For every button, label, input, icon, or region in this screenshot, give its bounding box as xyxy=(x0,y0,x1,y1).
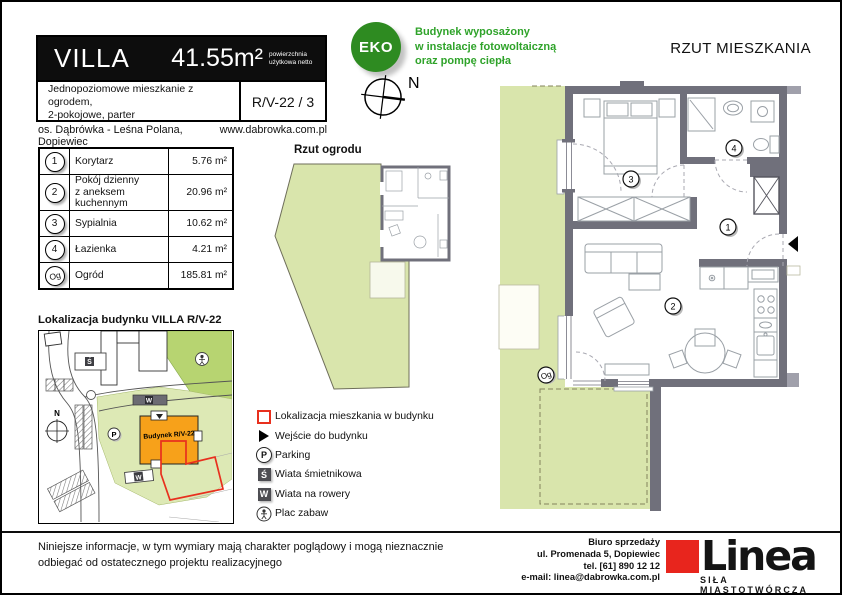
garden-fence-wall xyxy=(650,385,661,511)
unit-description-line1: Jednopoziomowe mieszkanie z ogrodem, xyxy=(48,83,239,109)
shaft xyxy=(754,177,779,214)
legend-label: Wiata na rowery xyxy=(275,489,350,500)
garden-plan-drawing xyxy=(272,154,482,394)
room-name: Ogród xyxy=(75,270,168,282)
flyer-page: VILLA 41.55m² powierzchnia użytkowa nett… xyxy=(0,0,842,595)
map-bike-badge: W xyxy=(146,398,153,405)
map-legend: Lokalizacja mieszkania w budynku Wejście… xyxy=(253,407,443,523)
estate-name: os. Dąbrówka - Leśna Polana, Dopiewiec xyxy=(38,124,220,148)
room-number-badge: 4 xyxy=(45,240,65,260)
table-row: 3 Sypialnia 10.62 m² xyxy=(40,211,232,237)
table-row: 1 Korytarz 5.76 m² xyxy=(40,149,232,175)
entrance-arrow-icon xyxy=(259,430,269,442)
location-map-title: Lokalizacja budynku VILLA R/V-22 xyxy=(38,314,222,326)
apartment-plan-title: RZUT MIESZKANIA xyxy=(666,40,811,57)
header-card: VILLA 41.55m² powierzchnia użytkowa nett… xyxy=(36,35,327,122)
map-parking-badge: P xyxy=(111,430,116,439)
unit-code: R/V-22 / 3 xyxy=(241,82,325,122)
unit-description-line2: 2-pokojowe, parter xyxy=(48,109,239,122)
map-playground-icon xyxy=(196,353,209,366)
room-name: Korytarz xyxy=(75,156,168,168)
header-subline: os. Dąbrówka - Leśna Polana, Dopiewiec w… xyxy=(38,124,327,148)
bike-shelter-icon: W xyxy=(258,488,271,501)
table-row: 4 Łazienka 4.21 m² xyxy=(40,237,232,263)
logo-wordmark: Linea xyxy=(701,540,816,573)
table-row: 2 Pokój dzienny z aneksem kuchennym 20.9… xyxy=(40,175,232,211)
office-phone[interactable]: tel. [61] 890 12 12 xyxy=(472,561,660,573)
compass-icon: N xyxy=(356,72,422,124)
room-area: 20.96 m² xyxy=(169,175,232,210)
room-area: 185.81 m² xyxy=(169,263,232,288)
walls xyxy=(565,81,801,387)
unit-description: Jednopoziomowe mieszkanie z ogrodem, 2-p… xyxy=(38,82,241,122)
room-name: Sypialnia xyxy=(75,218,168,230)
room-number-badge: 3 xyxy=(45,214,65,234)
eco-text: Budynek wyposażony w instalacje fotowolt… xyxy=(415,25,556,69)
legend-item: Plac zabaw xyxy=(253,504,443,523)
office-email[interactable]: e-mail: linea@dabrowka.com.pl xyxy=(472,572,660,584)
eco-line3: oraz pompę ciepła xyxy=(415,54,556,69)
mini-window xyxy=(380,230,384,247)
parking-icon: P xyxy=(256,447,272,463)
room-number-badge: 2 xyxy=(45,183,65,203)
room-label-3: 3 xyxy=(628,175,633,185)
villa-title: VILLA xyxy=(54,43,130,74)
eco-badge: EKO xyxy=(351,22,401,72)
room-name: Łazienka xyxy=(75,244,168,256)
disclaimer-line2: odbiegać od ostatecznego projektu realiz… xyxy=(38,556,468,572)
legend-label: Parking xyxy=(275,450,310,461)
legend-item: P Parking xyxy=(253,446,443,465)
room-number-badge: 1 xyxy=(45,152,65,172)
legend-item: Lokalizacja mieszkania w budynku xyxy=(253,407,443,426)
header-info-row: Jednopoziomowe mieszkanie z ogrodem, 2-p… xyxy=(38,80,325,122)
room-name-line2: z aneksem kuchennym xyxy=(75,187,168,210)
map-trash-badge: Ś xyxy=(87,357,92,366)
legend-item: W Wiata na rowery xyxy=(253,485,443,504)
legend-label: Wiata śmietnikowa xyxy=(275,469,362,480)
room-name: Pokój dzienny xyxy=(75,175,168,187)
table-row: Og Ogród 185.81 m² xyxy=(40,263,232,288)
room-area: 5.76 m² xyxy=(169,149,232,174)
legend-label: Plac zabaw xyxy=(275,508,328,519)
apartment-plan-drawing: 3 4 1 2 Og xyxy=(494,70,814,515)
logo-red-square xyxy=(666,540,699,573)
linea-logo: Linea SIŁA MIASTOTWÓRCZA xyxy=(666,536,816,595)
office-title: Biuro sprzedaży xyxy=(472,537,660,549)
apartment-outline-icon xyxy=(257,410,271,424)
room-table: 1 Korytarz 5.76 m² 2 Pokój dzienny z ane… xyxy=(38,147,234,290)
area-note: powierzchnia użytkowa netto xyxy=(269,51,317,66)
room-label-2: 2 xyxy=(670,302,675,312)
room-label-4: 4 xyxy=(731,144,736,154)
mini-window xyxy=(380,182,384,195)
legend-label: Lokalizacja mieszkania w budynku xyxy=(275,411,434,422)
header-black-bar: VILLA 41.55m² powierzchnia użytkowa nett… xyxy=(38,37,325,80)
compass-north-label: N xyxy=(408,75,420,92)
furniture xyxy=(578,98,779,377)
office-address: ul. Promenada 5, Dopiewiec xyxy=(472,549,660,561)
entrance-arrow-icon xyxy=(788,236,798,252)
eco-line1: Budynek wyposażony xyxy=(415,25,556,40)
room-area: 10.62 m² xyxy=(169,211,232,236)
room-area: 4.21 m² xyxy=(169,237,232,262)
playground-icon xyxy=(256,506,272,522)
legend-label: Wejście do budynku xyxy=(275,431,368,442)
legend-item: Ś Wiata śmietnikowa xyxy=(253,465,443,484)
disclaimer-line1: Niniejsze informacje, w tym wymiary mają… xyxy=(38,540,468,556)
trash-shelter-icon: Ś xyxy=(258,468,271,481)
area-value: 41.55m² xyxy=(171,44,263,73)
eco-line2: w instalacje fotowoltaiczną xyxy=(415,40,556,55)
legend-item: Wejście do budynku xyxy=(253,426,443,445)
room-label-1: 1 xyxy=(725,223,730,233)
disclaimer: Niniejsze informacje, w tym wymiary mają… xyxy=(38,540,468,571)
location-map: Ś W W Budynek R/V-22 P xyxy=(38,330,234,524)
map-north-label: N xyxy=(54,409,60,418)
terrace xyxy=(499,285,539,349)
garden-badge: Og xyxy=(42,263,66,287)
sales-office-info: Biuro sprzedaży ul. Promenada 5, Dopiewi… xyxy=(472,537,660,584)
location-map-drawing: Ś W W Budynek R/V-22 P xyxy=(39,331,232,522)
